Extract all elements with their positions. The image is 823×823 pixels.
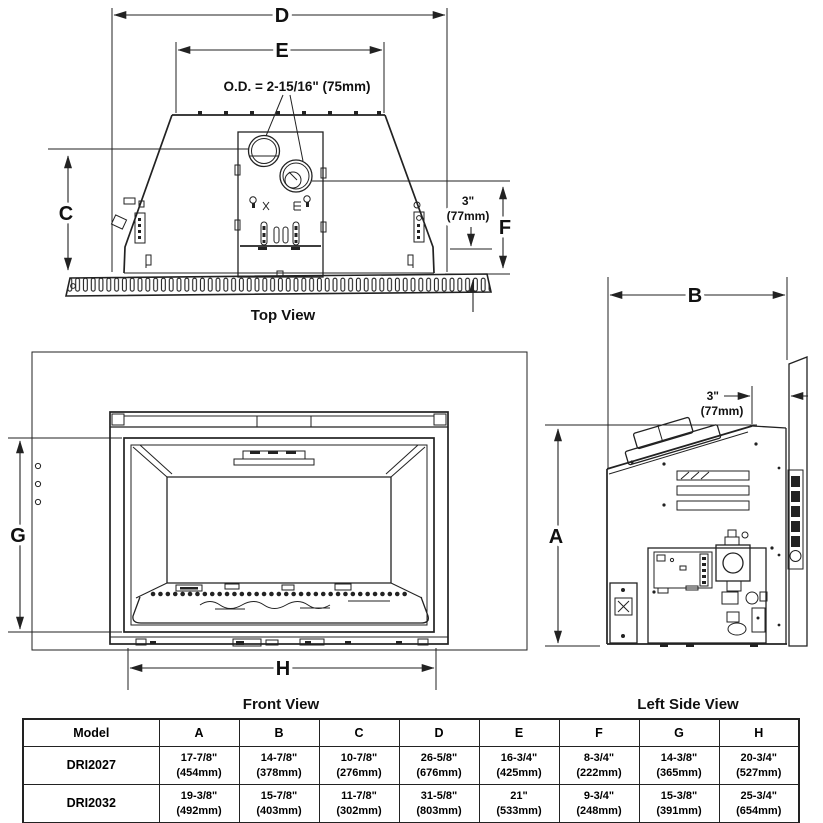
top-view-drawing: D E O.D. = 2-15/16" (75mm) — [48, 5, 511, 324]
front-view-caption: Front View — [243, 696, 320, 713]
side-view-drawing: B 3" (77mm) A — [545, 277, 808, 713]
table-cell: 20-3/4"(527mm) — [719, 747, 799, 785]
table-cell: 11-7/8"(302mm) — [319, 785, 399, 823]
dim-label-d: D — [275, 5, 289, 27]
model-cell: DRI2032 — [23, 785, 159, 823]
dim-label-c: C — [59, 203, 73, 225]
table-row: DRI2027 17-7/8"(454mm) 14-7/8"(378mm) 10… — [23, 747, 799, 785]
table-cell: 26-5/8"(676mm) — [399, 747, 479, 785]
side-view-caption: Left Side View — [637, 696, 739, 713]
table-cell: 14-3/8"(365mm) — [639, 747, 719, 785]
table-cell: 14-7/8"(378mm) — [239, 747, 319, 785]
dim-label-b: B — [688, 285, 702, 307]
offset-label-mm: (77mm) — [447, 209, 490, 223]
table-cell: 15-7/8"(403mm) — [239, 785, 319, 823]
table-cell: 9-3/4"(248mm) — [559, 785, 639, 823]
model-cell: DRI2027 — [23, 747, 159, 785]
insert-body — [110, 412, 448, 644]
table-cell: 16-3/4"(425mm) — [479, 747, 559, 785]
table-row: DRI2032 19-3/8"(492mm) 15-7/8"(403mm) 11… — [23, 785, 799, 823]
table-header-row: Model A B C D E F G H — [23, 719, 799, 747]
front-view-drawing: G H Front View — [8, 352, 527, 713]
column-header-model: Model — [23, 719, 159, 747]
flue-collar — [621, 410, 721, 465]
side-offset-mm: (77mm) — [701, 404, 744, 418]
dim-label-a: A — [549, 526, 563, 548]
surround-panel — [32, 352, 527, 650]
column-header-e: E — [479, 719, 559, 747]
dim-label-h: H — [276, 658, 290, 680]
dim-label-f: F — [499, 217, 511, 239]
table-cell: 31-5/8"(803mm) — [399, 785, 479, 823]
table-cell: 25-3/4"(654mm) — [719, 785, 799, 823]
column-header-c: C — [319, 719, 399, 747]
table-cell: 19-3/8"(492mm) — [159, 785, 239, 823]
table-cell: 15-3/8"(391mm) — [639, 785, 719, 823]
control-compartment — [648, 548, 766, 643]
table-cell: 17-7/8"(454mm) — [159, 747, 239, 785]
dim-label-g: G — [10, 525, 26, 547]
column-header-h: H — [719, 719, 799, 747]
column-header-a: A — [159, 719, 239, 747]
column-header-g: G — [639, 719, 719, 747]
side-offset-in: 3" — [707, 389, 719, 403]
table-cell: 8-3/4"(222mm) — [559, 747, 639, 785]
column-header-f: F — [559, 719, 639, 747]
offset-label-in: 3" — [462, 194, 474, 208]
dimension-diagram-page: D E O.D. = 2-15/16" (75mm) — [0, 0, 823, 823]
column-header-d: D — [399, 719, 479, 747]
table-cell: 10-7/8"(276mm) — [319, 747, 399, 785]
table-cell: 21"(533mm) — [479, 785, 559, 823]
od-label: O.D. = 2-15/16" (75mm) — [223, 79, 370, 94]
column-header-b: B — [239, 719, 319, 747]
drawings-svg: D E O.D. = 2-15/16" (75mm) — [0, 0, 823, 714]
dim-label-e: E — [275, 40, 288, 62]
dimension-table: Model A B C D E F G H DRI2027 17-7/8"(45… — [22, 718, 800, 823]
door-frame — [124, 438, 434, 632]
top-view-caption: Top View — [251, 307, 316, 324]
